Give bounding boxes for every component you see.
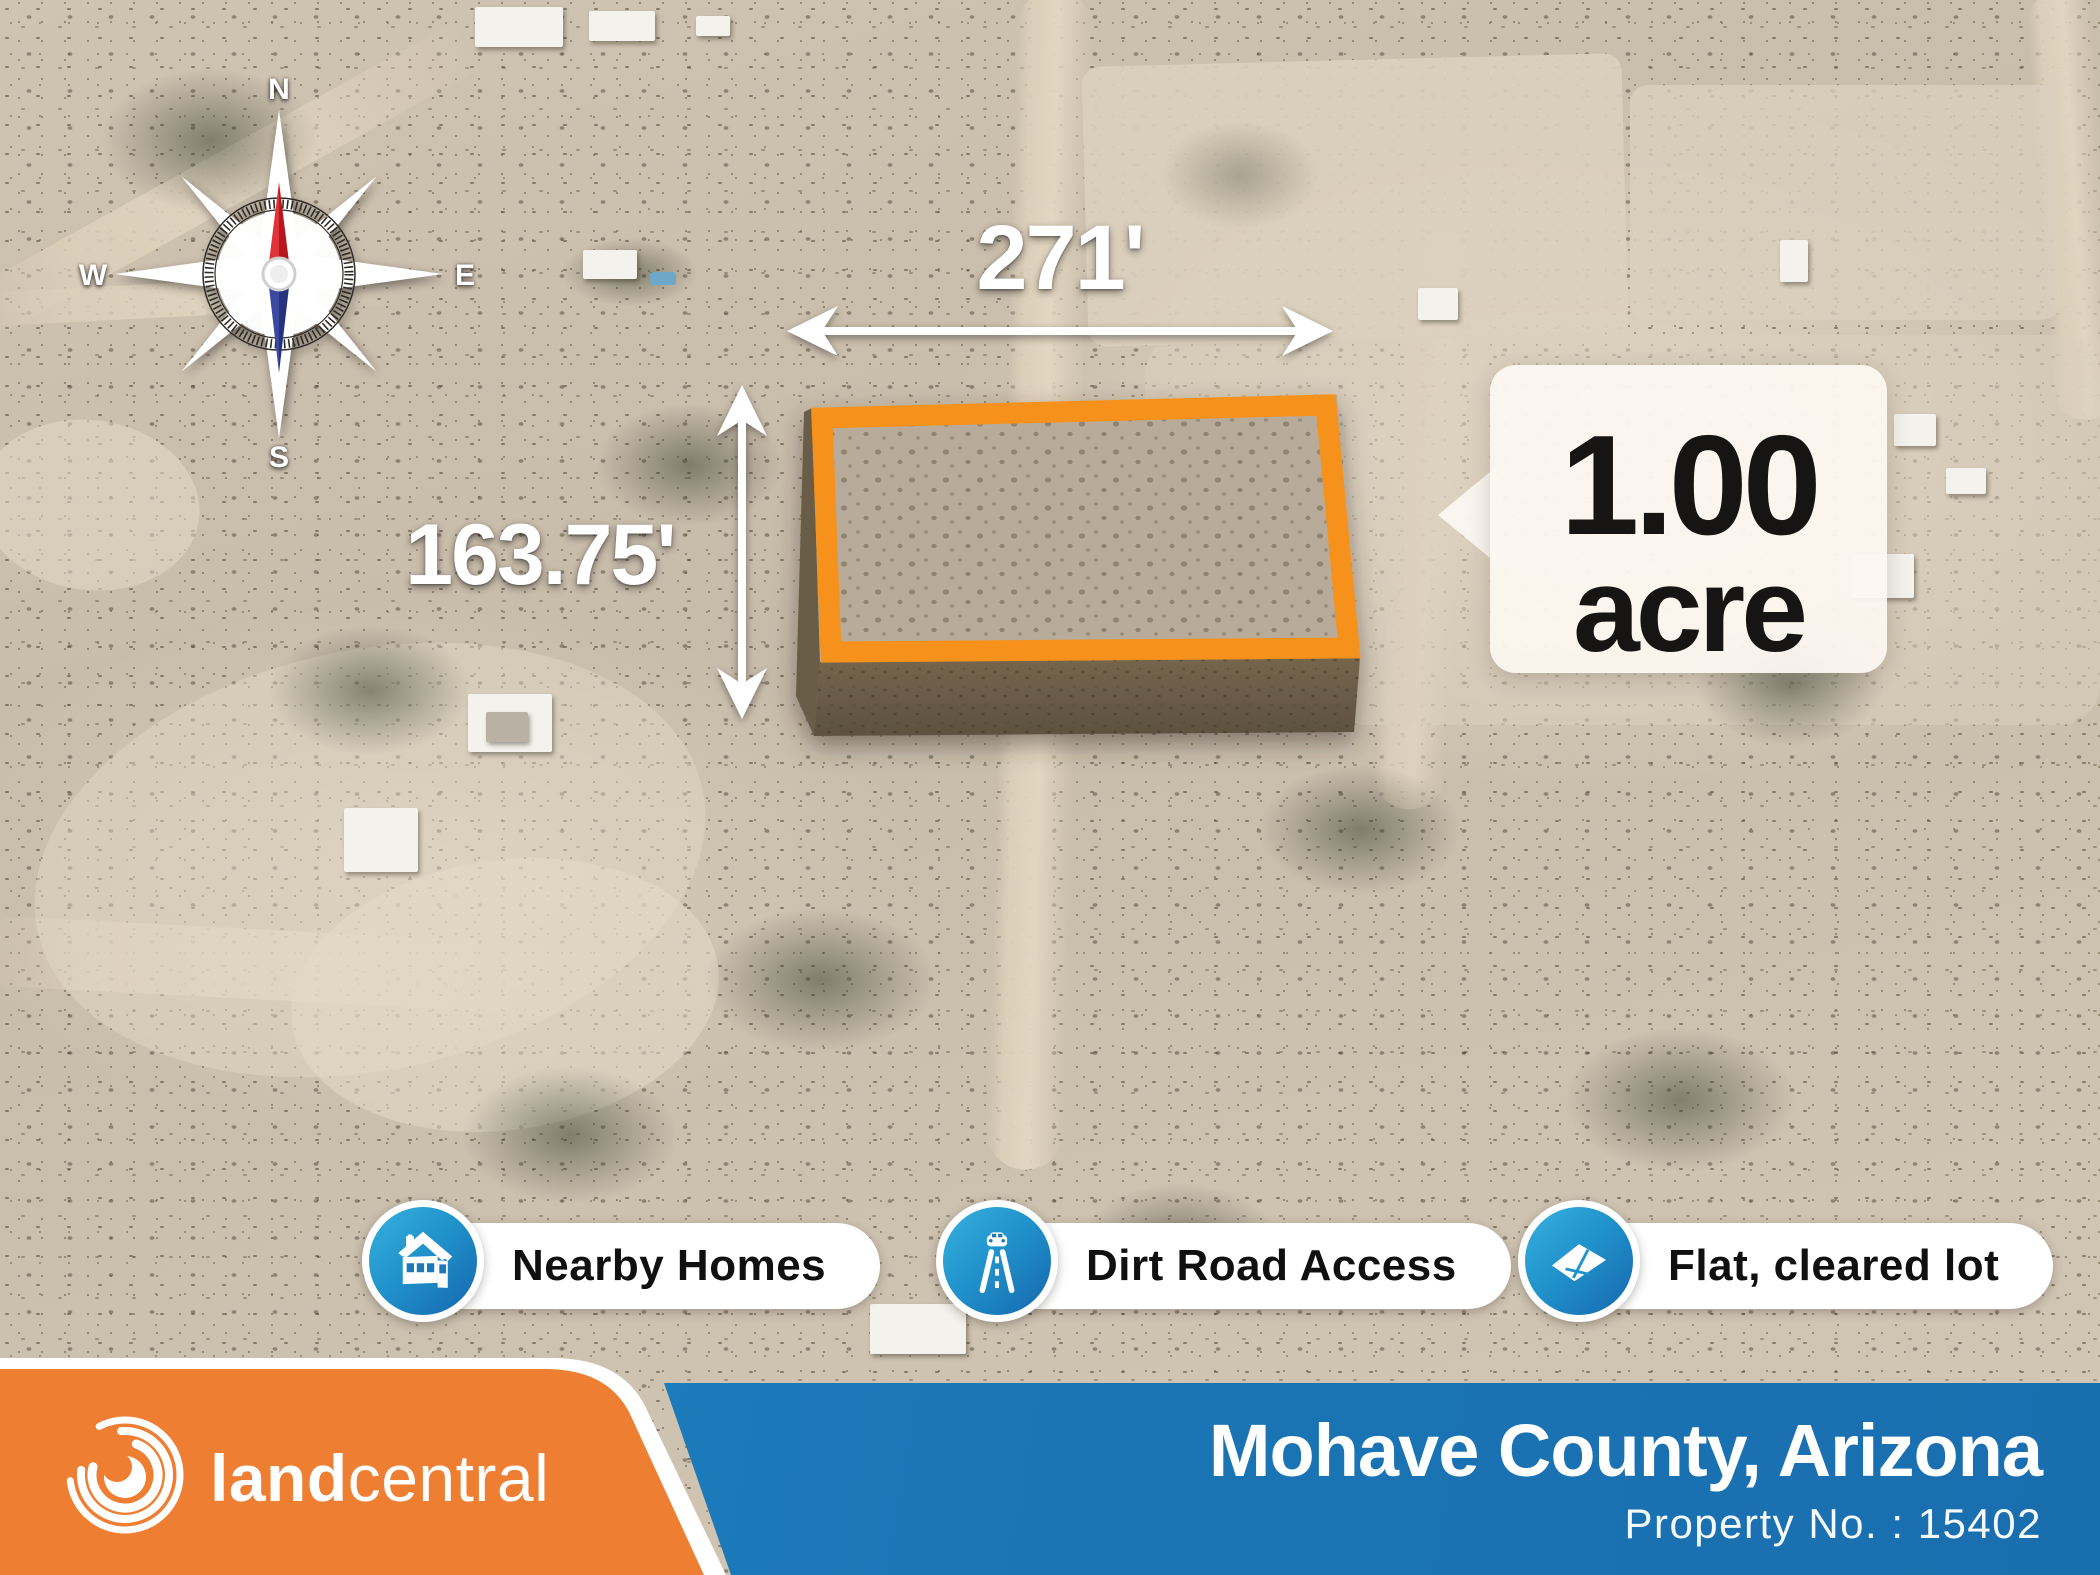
building [1780,240,1808,282]
feature-label: Nearby Homes [512,1241,826,1291]
house-icon [387,1225,459,1297]
width-dimension-label: 271' [910,206,1210,311]
compass-rose-icon [94,89,464,459]
feature-label: Dirt Road Access [1086,1241,1457,1291]
acreage-callout: 1.00 acre [1490,365,1887,673]
vegetation-patch [1520,1000,1840,1200]
building [583,250,637,279]
acreage-unit: acre [1490,552,1887,670]
building [1946,468,1986,494]
building [870,1304,966,1354]
county-title: Mohave County, Arizona [1209,1412,2042,1490]
compass-label-w: W [79,259,107,293]
feature-label: Flat, cleared lot [1668,1241,1999,1291]
building [1894,414,1936,446]
property-flyer: N E S W [0,0,2100,1575]
footer-location-block: Mohave County, Arizona Property No. : 15… [1209,1412,2042,1548]
road-icon [961,1225,1033,1297]
building [696,16,730,36]
brand-name: landcentral [210,1440,549,1516]
flat-lot-icon [1543,1225,1615,1297]
swimming-pool [650,272,676,285]
feature-icon-circle [936,1200,1058,1322]
height-dimension-label: 163.75' [370,506,710,605]
acreage-value: 1.00 [1490,421,1887,552]
compass-label-n: N [268,73,290,107]
parcel-highlight [770,360,1410,790]
callout-tail [1438,467,1496,563]
compass-label-s: S [269,441,289,475]
feature-icon-circle [362,1200,484,1322]
property-number: Property No. : 15402 [1209,1500,2042,1548]
brand-name-bold: land [210,1441,348,1515]
feature-pill: Nearby Homes [420,1223,880,1309]
feature-icon-circle [1518,1200,1640,1322]
feature-pill: Flat, cleared lot [1576,1223,2053,1309]
building [486,712,528,742]
brand-name-light: central [348,1441,550,1515]
building [344,808,418,872]
building [475,7,563,47]
brand-logo-swirl-icon [55,1403,195,1543]
building [1418,288,1458,320]
cleared-parcel-top-far-right [1630,85,2060,320]
vegetation-patch [420,1040,720,1230]
vegetation-patch [230,600,510,780]
compass-label-e: E [455,259,475,293]
building [589,11,655,41]
feature-pill: Dirt Road Access [994,1223,1511,1309]
